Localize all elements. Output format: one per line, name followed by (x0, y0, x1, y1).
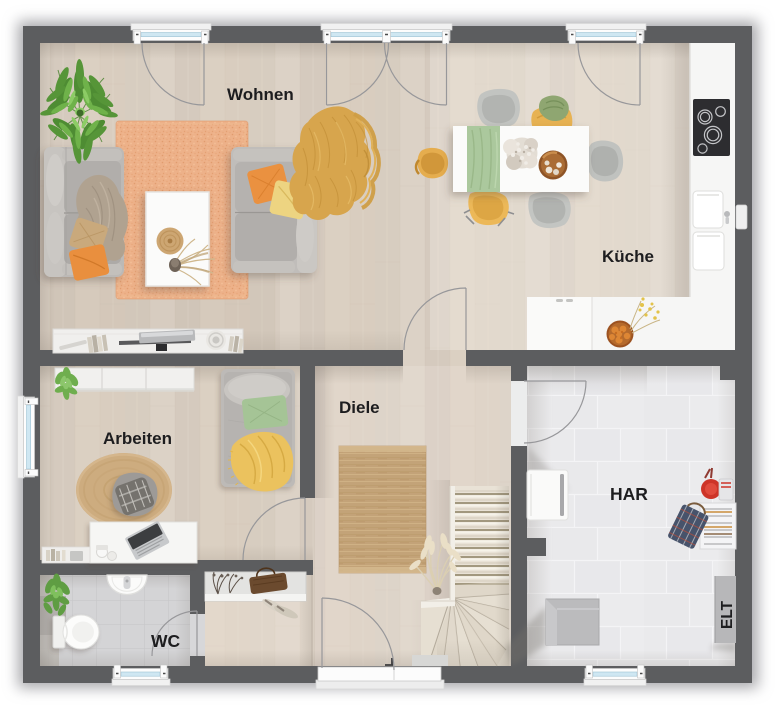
svg-text:Arbeiten: Arbeiten (103, 429, 172, 448)
svg-text:ELT: ELT (719, 600, 736, 629)
svg-text:Wohnen: Wohnen (227, 85, 294, 104)
svg-text:WC: WC (151, 631, 181, 651)
svg-text:Diele: Diele (339, 398, 380, 417)
svg-text:HAR: HAR (610, 484, 648, 504)
svg-text:Küche: Küche (602, 247, 654, 266)
